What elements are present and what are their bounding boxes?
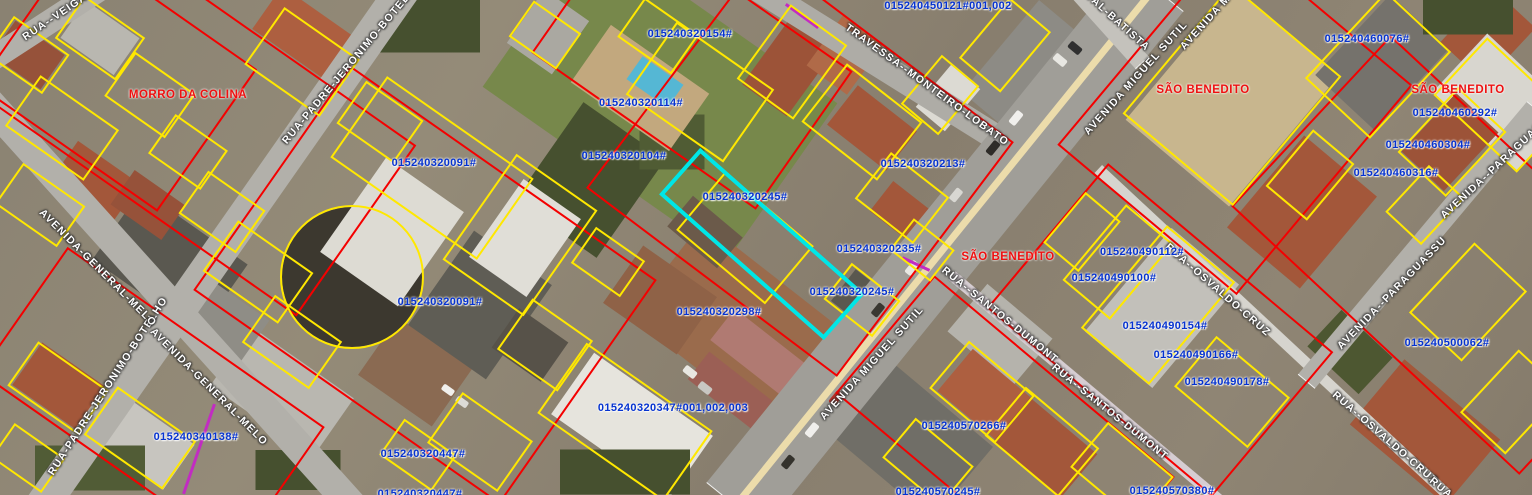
district-name-label: SÃO BENEDITO: [1156, 84, 1249, 96]
map-canvas[interactable]: RUA--VEIGARUA-PADRE-JERONIMO-BOTELHORUA-…: [0, 0, 1532, 495]
district-label-layer: MORRO DA COLINASÃO BENEDITOSÃO BENEDITOS…: [0, 0, 1532, 495]
district-name-label: SÃO BENEDITO: [961, 251, 1054, 263]
district-name-label: MORRO DA COLINA: [129, 89, 247, 101]
district-name-label: SÃO BENEDITO: [1411, 84, 1504, 96]
